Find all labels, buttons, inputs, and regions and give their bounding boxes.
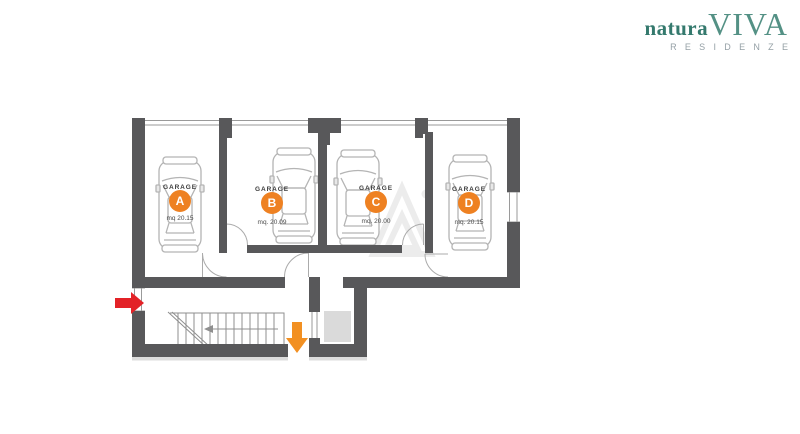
door-garage-a — [203, 253, 227, 277]
wall-garage-a-b — [219, 132, 227, 253]
ramp-down-arrow — [286, 322, 308, 353]
brand-tagline: RESIDENZE — [644, 43, 796, 52]
wall-garage-b-c — [318, 131, 327, 253]
wall-right-upper — [507, 118, 520, 192]
elevator-door — [312, 312, 317, 338]
wall-corridor-bottom-left — [132, 277, 285, 288]
garage-d-label: GARAGE — [452, 186, 486, 193]
wall-shadow — [309, 357, 367, 361]
pillar — [219, 118, 232, 134]
garage-c-area: mq. 20.00 — [362, 218, 391, 225]
door-stairwell — [285, 253, 309, 277]
wall-corridor-top — [247, 245, 402, 253]
pillar-step — [415, 132, 423, 138]
garage-a-area: mq 20.15 — [166, 215, 193, 222]
wall-corridor-top-left — [219, 245, 227, 253]
wall-corridor-bottom-right — [343, 277, 520, 288]
staircase — [168, 312, 284, 347]
door-garage-b — [227, 224, 248, 245]
wall-elevator-right — [354, 277, 367, 357]
pillar-center — [308, 118, 341, 133]
wall-shadow — [132, 357, 288, 361]
garage-a-letter: A — [176, 194, 185, 208]
brand-name-part1: natura — [644, 16, 708, 40]
garage-b-label: GARAGE — [255, 186, 289, 193]
stair-break-line — [168, 312, 210, 347]
floor-plan: GARAGE A mq 20.15 GARAGE B mq. 20.09 GAR… — [0, 0, 800, 434]
garage-c-letter: C — [372, 195, 381, 209]
stair-direction-arrowhead — [204, 325, 213, 333]
door-garage-d — [425, 254, 448, 277]
brand-name-part2: VIVA — [708, 6, 788, 42]
elevator-car — [323, 310, 352, 343]
brand-wordmark: naturaVIVA — [644, 8, 788, 40]
wall-elevator-left — [309, 277, 320, 312]
brand-logo: naturaVIVA RESIDENZE — [644, 8, 788, 52]
window-right-wall — [507, 192, 520, 222]
page: GARAGE A mq 20.15 GARAGE B mq. 20.09 GAR… — [0, 0, 800, 434]
garage-a-label: GARAGE — [163, 184, 197, 191]
garage-c-label: GARAGE — [359, 185, 393, 192]
garage-d-area: mq. 20.15 — [455, 219, 484, 226]
wall-left-upper — [132, 118, 145, 288]
garage-b-area: mq. 20.09 — [258, 219, 287, 226]
wall-garage-c-d — [425, 132, 433, 253]
pillar — [415, 118, 428, 134]
wall-stair-bottom — [132, 344, 288, 357]
garage-b-letter: B — [268, 196, 277, 210]
garage-d-letter: D — [465, 196, 474, 210]
